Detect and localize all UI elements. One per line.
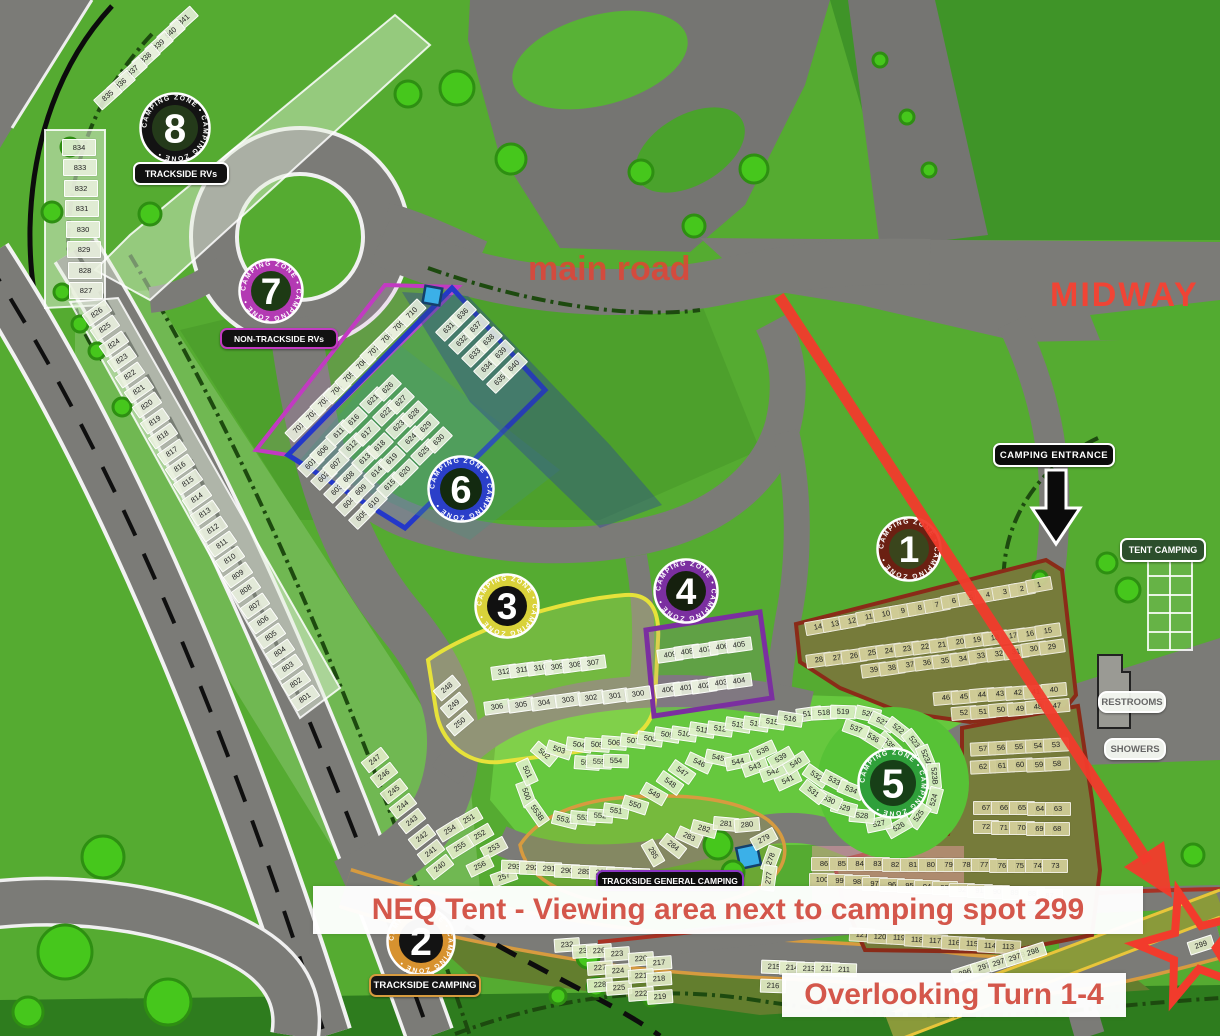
svg-text:6: 6 (450, 470, 471, 512)
svg-text:8: 8 (164, 105, 186, 151)
label-non-trackside-rvs: NON-TRACKSIDE RVs (220, 328, 338, 349)
label-tent-camping: TENT CAMPING (1120, 538, 1206, 562)
label-trackside-camping: TRACKSIDE CAMPING (369, 974, 481, 997)
svg-text:7: 7 (261, 271, 282, 312)
label-trackside-rvs: TRACKSIDE RVs (133, 162, 229, 185)
svg-text:4: 4 (676, 571, 697, 612)
label-restrooms: RESTROOMS (1098, 691, 1166, 713)
camping-map: 8418408398388378368358348338328318308298… (0, 0, 1220, 1036)
label-showers: SHOWERS (1104, 738, 1166, 760)
svg-text:3: 3 (497, 586, 518, 627)
banner-overlooking: Overlooking Turn 1-4 (782, 973, 1126, 1017)
svg-text:5: 5 (882, 760, 904, 806)
svg-text:1: 1 (899, 529, 920, 570)
banner-neq-tent: NEQ Tent - Viewing area next to camping … (313, 886, 1143, 934)
label-camping-entrance: CAMPING ENTRANCE (993, 443, 1115, 467)
